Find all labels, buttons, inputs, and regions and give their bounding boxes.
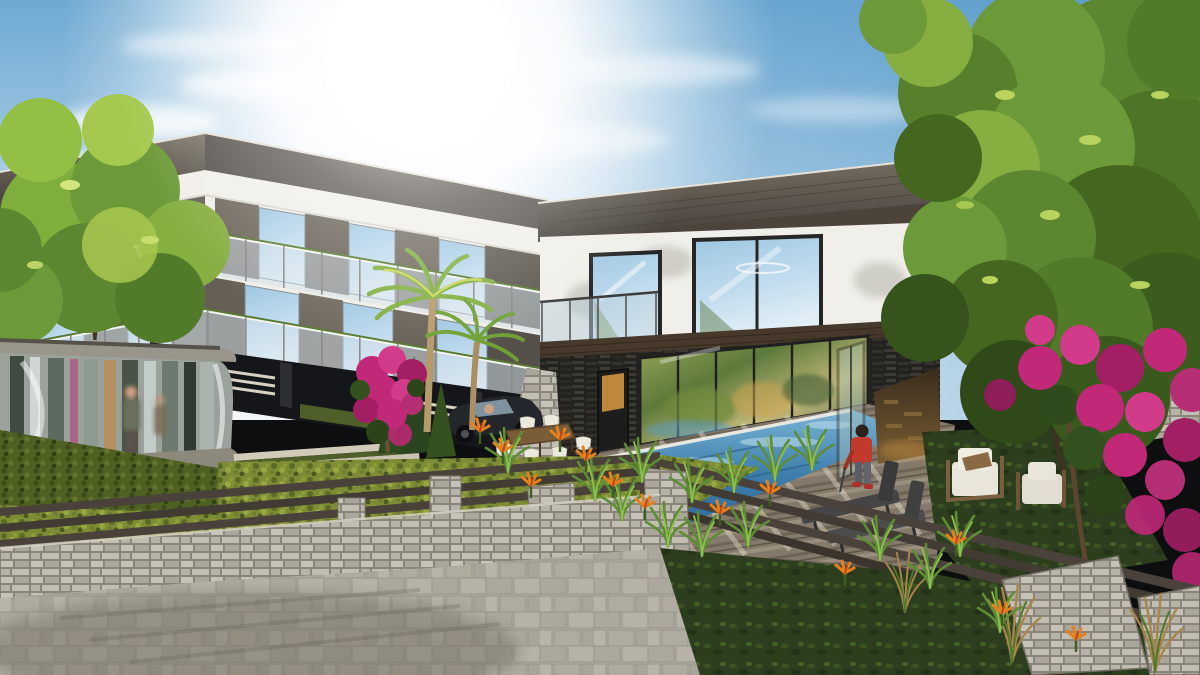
architectural-render	[0, 0, 1200, 675]
sun-haze-overlay	[0, 0, 1200, 675]
